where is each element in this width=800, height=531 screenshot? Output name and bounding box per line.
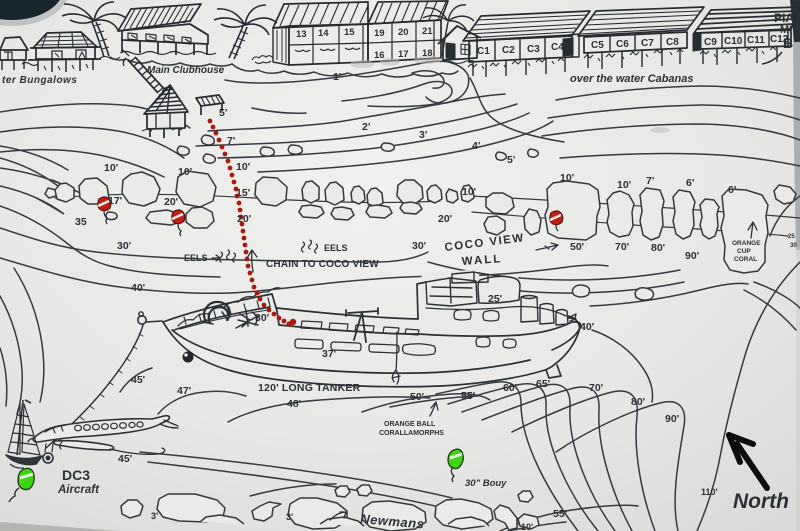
svg-text:1': 1': [333, 71, 341, 83]
svg-text:25: 25: [788, 234, 795, 240]
svg-text:6': 6': [686, 177, 694, 189]
svg-text:30': 30': [412, 240, 426, 252]
svg-text:C2: C2: [502, 45, 515, 56]
svg-text:19: 19: [374, 28, 385, 39]
svg-text:North: North: [733, 490, 789, 513]
svg-text:37': 37': [322, 348, 336, 360]
svg-text:20': 20': [438, 213, 452, 225]
svg-text:CUP: CUP: [737, 248, 751, 255]
svg-text:30': 30': [117, 240, 131, 252]
svg-text:14: 14: [318, 28, 329, 39]
svg-text:3': 3': [419, 129, 427, 141]
svg-text:5': 5': [507, 154, 515, 166]
svg-text:C10: C10: [724, 36, 743, 47]
svg-text:C3: C3: [527, 44, 540, 55]
svg-text:30': 30': [255, 312, 269, 324]
svg-text:70': 70': [589, 382, 603, 394]
svg-text:Main Clubhouse: Main Clubhouse: [147, 65, 225, 76]
svg-text:25': 25': [488, 293, 502, 305]
svg-text:DC3: DC3: [62, 467, 90, 483]
svg-text:ter Bungalows: ter Bungalows: [2, 75, 77, 86]
svg-text:45': 45': [118, 453, 132, 465]
svg-text:45': 45': [131, 374, 145, 386]
svg-text:2': 2': [362, 121, 370, 133]
svg-text:C7: C7: [641, 38, 654, 49]
svg-text:CORALLAMORPHS: CORALLAMORPHS: [379, 430, 444, 437]
svg-text:60': 60': [503, 382, 517, 394]
svg-text:15': 15': [236, 187, 250, 199]
svg-text:65': 65': [536, 378, 550, 390]
svg-text:20': 20': [237, 213, 251, 225]
svg-text:120' LONG TANKER: 120' LONG TANKER: [258, 382, 361, 394]
svg-text:30" Bouy: 30" Bouy: [465, 478, 507, 489]
svg-text:C6: C6: [616, 39, 629, 50]
svg-text:13: 13: [296, 29, 307, 40]
svg-text:10': 10': [560, 172, 574, 184]
svg-text:50': 50': [410, 391, 424, 403]
svg-text:47': 47': [177, 385, 191, 397]
svg-text:21: 21: [422, 26, 433, 37]
svg-text:55': 55': [553, 508, 567, 520]
svg-text:EELS: EELS: [184, 253, 208, 263]
svg-text:Aircraft: Aircraft: [57, 484, 100, 496]
svg-text:10': 10': [236, 161, 250, 173]
svg-text:10': 10': [521, 522, 533, 531]
svg-text:40': 40': [580, 321, 594, 333]
svg-text:CORAL: CORAL: [734, 256, 757, 263]
svg-text:80': 80': [631, 396, 645, 408]
svg-text:C12: C12: [770, 34, 789, 45]
svg-text:C4: C4: [551, 42, 564, 53]
svg-text:80': 80': [651, 242, 665, 254]
svg-text:CHAIN TO COCO VIEW: CHAIN TO COCO VIEW: [266, 259, 379, 270]
svg-text:20: 20: [398, 27, 409, 38]
svg-text:EELS: EELS: [324, 243, 348, 253]
svg-text:6': 6': [728, 184, 736, 196]
svg-text:10': 10': [178, 166, 192, 178]
svg-text:55': 55': [461, 390, 475, 402]
svg-text:35: 35: [75, 216, 87, 228]
svg-text:3': 3': [286, 512, 293, 522]
svg-text:90': 90': [665, 413, 679, 425]
svg-text:30: 30: [790, 243, 797, 249]
svg-text:4': 4': [472, 140, 480, 152]
svg-text:10': 10': [462, 186, 476, 198]
svg-text:17': 17': [108, 195, 122, 207]
svg-text:10': 10': [104, 162, 118, 174]
svg-text:40': 40': [131, 282, 145, 294]
svg-text:50': 50': [570, 241, 584, 253]
svg-text:5': 5': [219, 107, 227, 119]
svg-text:18: 18: [422, 48, 433, 59]
svg-text:15: 15: [344, 27, 355, 38]
svg-text:C1: C1: [477, 46, 490, 57]
svg-text:3': 3': [151, 511, 158, 521]
svg-text:C8: C8: [666, 37, 679, 48]
svg-text:ORANGE: ORANGE: [732, 240, 761, 247]
svg-text:C5: C5: [591, 40, 604, 51]
svg-text:PIA: PIA: [774, 11, 794, 25]
svg-text:20': 20': [164, 196, 178, 208]
svg-text:90': 90': [685, 250, 699, 262]
svg-text:ORANGE BALL: ORANGE BALL: [384, 421, 436, 428]
svg-text:C9: C9: [704, 37, 717, 48]
svg-text:7': 7': [646, 175, 654, 187]
svg-text:7': 7': [227, 135, 235, 147]
svg-text:70': 70': [615, 241, 629, 253]
svg-text:C11: C11: [747, 35, 765, 46]
svg-text:17: 17: [398, 49, 409, 60]
svg-text:16: 16: [374, 50, 385, 61]
svg-text:10': 10': [617, 179, 631, 191]
svg-text:48': 48': [287, 398, 301, 410]
svg-text:over the water Cabanas: over the water Cabanas: [570, 73, 694, 85]
svg-text:110': 110': [701, 487, 718, 497]
